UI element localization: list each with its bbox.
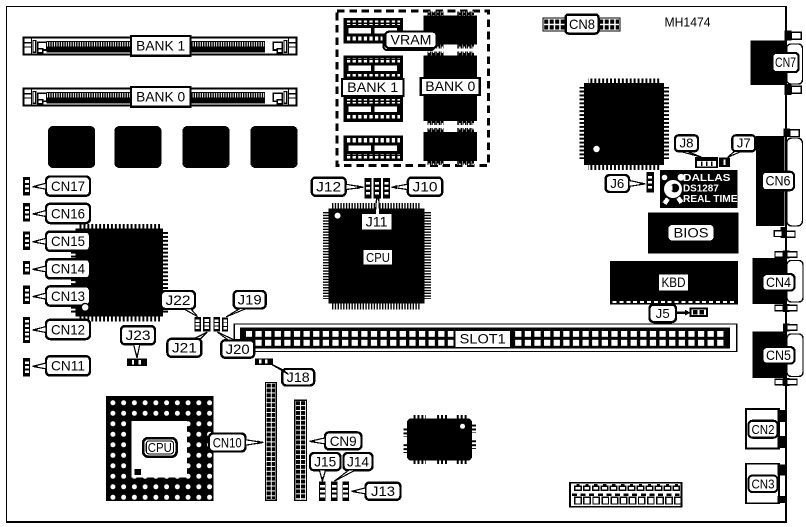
svg-text:J5: J5 [656,306,670,321]
svg-text:BANK 0: BANK 0 [136,89,185,104]
svg-text:BANK 1: BANK 1 [136,38,185,53]
svg-text:J13: J13 [371,483,395,499]
svg-text:CN11: CN11 [51,358,85,374]
svg-text:J19: J19 [238,292,262,308]
svg-text:KBD: KBD [662,275,686,290]
svg-text:CN5: CN5 [766,348,791,363]
svg-text:J12: J12 [316,179,341,195]
svg-text:BANK 0: BANK 0 [425,79,475,94]
svg-text:CN17: CN17 [51,178,85,194]
svg-text:J14: J14 [347,454,369,470]
svg-text:J7: J7 [737,137,751,151]
svg-text:BIOS: BIOS [674,225,709,240]
svg-text:J11: J11 [366,215,388,230]
svg-text:CN15: CN15 [51,233,85,249]
svg-text:SLOT1: SLOT1 [460,332,506,347]
svg-text:CN3: CN3 [752,476,775,491]
svg-text:J6: J6 [610,176,624,191]
svg-text:CN16: CN16 [51,205,85,221]
svg-text:CPU: CPU [148,440,172,455]
svg-text:J21: J21 [172,340,197,356]
svg-text:J22: J22 [166,292,191,308]
svg-text:J10: J10 [413,179,438,195]
svg-text:CN10: CN10 [213,434,242,450]
svg-text:CPU: CPU [366,250,390,265]
svg-text:CN9: CN9 [330,433,357,449]
svg-text:J20: J20 [226,341,250,357]
svg-text:J15: J15 [314,454,336,470]
svg-text:MH1474: MH1474 [665,15,711,30]
svg-text:CN14: CN14 [51,261,85,277]
svg-text:CN7: CN7 [775,55,796,70]
svg-text:CN13: CN13 [51,288,85,304]
svg-text:J18: J18 [287,370,310,385]
svg-text:REAL TIME: REAL TIME [683,193,738,205]
svg-text:CN4: CN4 [766,275,791,290]
svg-text:BANK 1: BANK 1 [347,80,398,95]
svg-text:CN6: CN6 [766,174,791,189]
svg-text:CN8: CN8 [569,16,595,32]
svg-text:CN2: CN2 [752,422,775,437]
svg-text:VRAM: VRAM [391,33,432,48]
svg-text:CN12: CN12 [51,321,85,337]
svg-text:J8: J8 [680,137,694,151]
svg-text:J23: J23 [126,327,151,343]
